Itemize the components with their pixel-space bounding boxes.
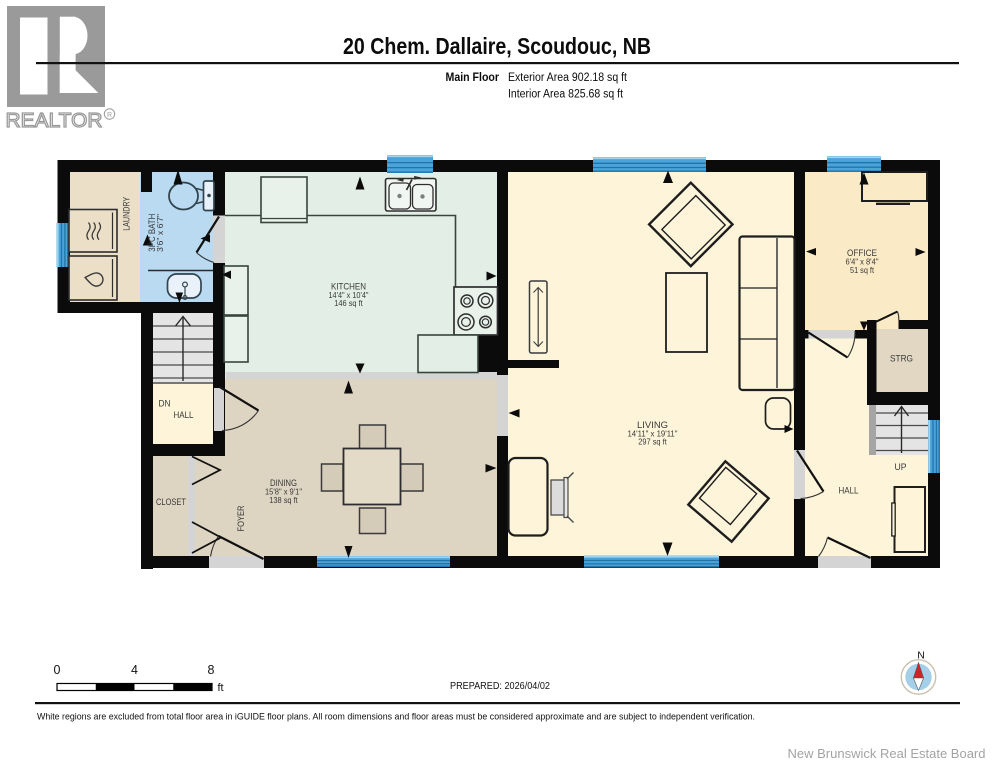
svg-text:3'6" x 6'7": 3'6" x 6'7": [155, 214, 165, 252]
svg-text:146 sq ft: 146 sq ft: [334, 298, 363, 308]
svg-text:HALL: HALL: [174, 410, 194, 420]
svg-text:DN: DN: [159, 399, 171, 409]
svg-text:FOYER: FOYER: [236, 505, 246, 531]
svg-text:STRG: STRG: [890, 354, 913, 364]
svg-text:0: 0: [54, 663, 61, 677]
svg-text:297 sq ft: 297 sq ft: [638, 437, 667, 447]
svg-text:UP: UP: [895, 462, 907, 472]
svg-text:White regions are excluded fro: White regions are excluded from total fl…: [37, 712, 755, 722]
svg-text:R: R: [107, 112, 112, 119]
svg-text:51 sq ft: 51 sq ft: [850, 265, 875, 275]
svg-text:4: 4: [131, 663, 138, 677]
svg-text:REALTOR: REALTOR: [6, 110, 103, 132]
svg-text:Exterior Area 902.18 sq ft: Exterior Area 902.18 sq ft: [508, 72, 628, 84]
svg-text:8: 8: [208, 663, 215, 677]
svg-text:20 Chem. Dallaire, Scoudouc, N: 20 Chem. Dallaire, Scoudouc, NB: [343, 33, 651, 59]
svg-text:N: N: [917, 650, 925, 662]
svg-text:LAUNDRY: LAUNDRY: [121, 197, 131, 231]
svg-text:HALL: HALL: [839, 486, 859, 496]
svg-text:Main Floor: Main Floor: [446, 70, 500, 84]
svg-text:CLOSET: CLOSET: [156, 497, 186, 507]
svg-text:PREPARED: 2026/04/02: PREPARED: 2026/04/02: [450, 681, 550, 692]
svg-text:New Brunswick Real Estate Boar: New Brunswick Real Estate Board: [788, 746, 986, 761]
svg-text:Interior Area 825.68 sq ft: Interior Area 825.68 sq ft: [508, 89, 624, 101]
svg-text:ft: ft: [218, 682, 224, 694]
svg-text:138 sq ft: 138 sq ft: [269, 495, 298, 505]
